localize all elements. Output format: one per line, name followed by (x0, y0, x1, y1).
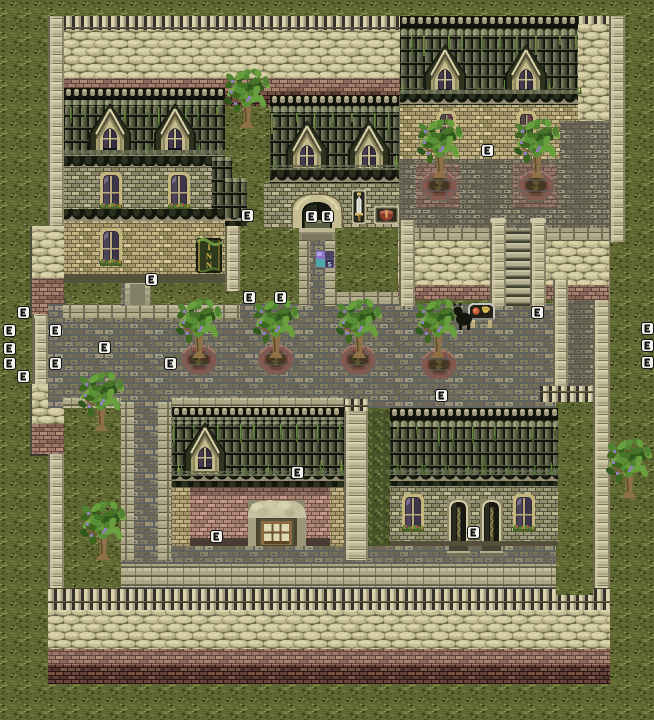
svg-text:N: N (206, 260, 213, 270)
svg-text:S: S (327, 262, 332, 269)
